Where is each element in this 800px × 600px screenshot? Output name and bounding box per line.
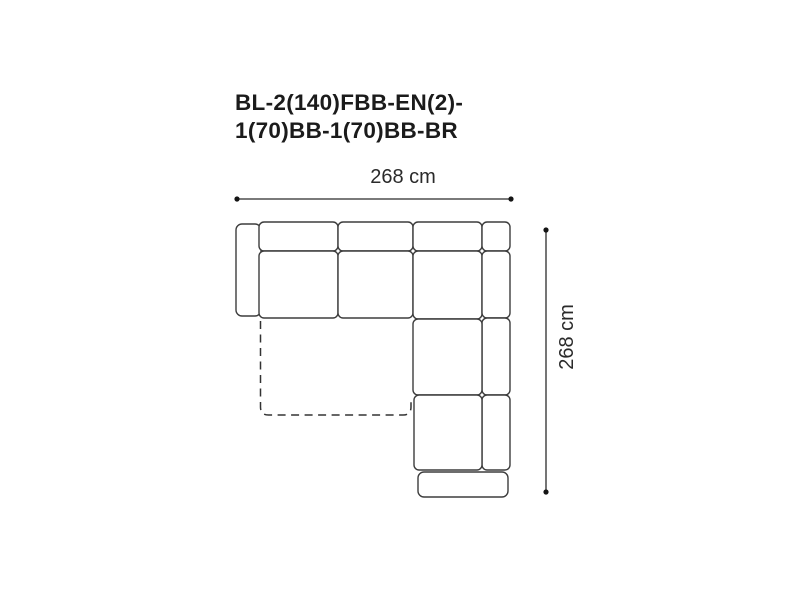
depth-dimension-end-dot: [543, 489, 548, 494]
chaise-seat-2: [414, 395, 482, 470]
seat-cushion-1: [259, 251, 338, 318]
side-backrest-1: [482, 251, 510, 318]
product-code-line-1: BL-2(140)FBB-EN(2)-: [235, 90, 463, 115]
chaise-seat-1: [413, 319, 482, 395]
width-dimension-label: 268 cm: [370, 166, 436, 188]
front-armrest: [418, 472, 508, 497]
backrest-cushion-1: [259, 222, 338, 251]
width-dimension-start-dot: [234, 196, 239, 201]
seat-cushion-2: [338, 251, 413, 318]
side-backrest-3: [482, 395, 510, 470]
depth-dimension-label: 268 cm: [556, 304, 578, 370]
left-armrest: [236, 224, 261, 316]
sofa-spec-diagram: BL-2(140)FBB-EN(2)- 1(70)BB-1(70)BB-BR 2…: [0, 0, 800, 600]
depth-dimension-start-dot: [543, 227, 548, 232]
sofa-outline: [236, 222, 510, 497]
product-code-line-2: 1(70)BB-1(70)BB-BR: [235, 118, 458, 143]
product-code: BL-2(140)FBB-EN(2)- 1(70)BB-1(70)BB-BR: [235, 90, 463, 143]
backrest-cushion-2: [338, 222, 413, 251]
corner-backrest: [482, 222, 510, 251]
side-backrest-2: [482, 318, 510, 395]
backrest-cushion-3: [413, 222, 482, 251]
sofa-plan-svg: BL-2(140)FBB-EN(2)- 1(70)BB-1(70)BB-BR 2…: [0, 0, 800, 600]
width-dimension-end-dot: [508, 196, 513, 201]
sleeper-extension-outline: [261, 321, 412, 415]
depth-dimension: 268 cm: [543, 227, 578, 494]
corner-seat: [413, 251, 482, 319]
width-dimension: 268 cm: [234, 166, 513, 202]
